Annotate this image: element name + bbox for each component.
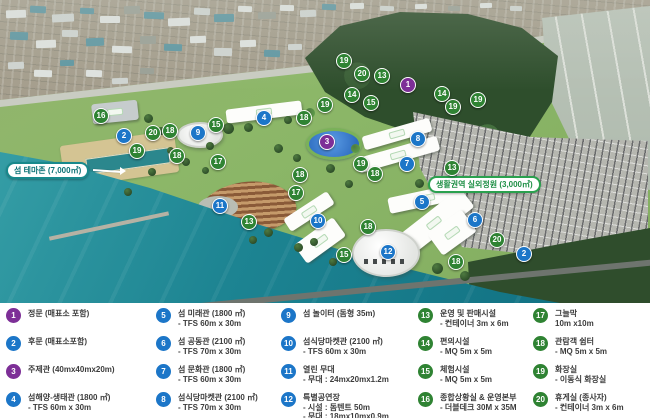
legend-item-15: 15체험시설- MQ 5m x 5m [418, 364, 533, 392]
legend-item-text: 화장실- 이동식 화장실 [555, 364, 606, 384]
haze-overlay [0, 0, 650, 303]
map-marker-19: 19 [445, 99, 461, 115]
map-marker-19: 19 [129, 143, 145, 159]
legend-item-text: 열린 무대- 무대 : 24mx20mx1.2m [303, 364, 389, 384]
map-marker-15: 15 [336, 247, 352, 263]
map-marker-2: 2 [516, 246, 532, 262]
map-marker-18: 18 [367, 166, 383, 182]
legend-item-13: 13운영 및 판매시설- 컨테이너 3m x 6m [418, 308, 533, 336]
legend-number-badge: 14 [418, 336, 433, 351]
legend-item-text: 그늘막10m x10m [555, 308, 594, 328]
map-marker-13: 13 [241, 214, 257, 230]
map-marker-7: 7 [399, 156, 415, 172]
map-marker-19: 19 [470, 92, 486, 108]
legend-item-text: 섬 놀이터 (돔형 35m) [303, 308, 375, 319]
map-marker-16: 16 [93, 108, 109, 124]
legend-item-text: 정문 (매표소 포함) [28, 308, 89, 319]
legend-item-text: 주제관 (40mx40mx20m) [28, 364, 115, 375]
legend-item-17: 17그늘막10m x10m [533, 308, 645, 336]
legend-item-7: 7섬 문화관 (1800 ㎡)- TFS 60m x 30m [156, 364, 281, 392]
map-marker-19: 19 [353, 156, 369, 172]
legend-number-badge: 16 [418, 392, 433, 407]
outdoor-garden-label: 생활권역 실외정원 (3,000㎡) [428, 176, 541, 193]
theme-zone-pointer-arrow [120, 167, 126, 175]
map-marker-6: 6 [467, 212, 483, 228]
legend-item-18: 18관람객 쉼터- MQ 5m x 5m [533, 336, 645, 364]
map-marker-13: 13 [444, 160, 460, 176]
legend-number-badge: 17 [533, 308, 548, 323]
theme-zone-label: 섬 테마존 (7,000㎡) [6, 162, 89, 179]
legend-number-badge: 4 [6, 392, 21, 407]
expo-site-plan: 섬 테마존 (7,000㎡) 생활권역 실외정원 (3,000㎡) 162201… [0, 0, 650, 418]
legend-item-text: 휴게실 (종사자)- 컨테이너 3m x 6m [555, 392, 624, 412]
map-marker-13: 13 [374, 68, 390, 84]
legend-item-text: 섬식당마켓관 (2100 ㎡)- TFS 70m x 30m [178, 392, 258, 412]
legend-number-badge: 13 [418, 308, 433, 323]
map-marker-18: 18 [360, 219, 376, 235]
map-marker-18: 18 [169, 148, 185, 164]
legend-number-badge: 15 [418, 364, 433, 379]
legend-item-4: 4섬해양-생태관 (1800 ㎡)- TFS 60m x 30m [6, 392, 156, 418]
legend-item-6: 6섬 공동관 (2100 ㎡)- TFS 70m x 30m [156, 336, 281, 364]
map-marker-19: 19 [317, 97, 333, 113]
legend-number-badge: 19 [533, 364, 548, 379]
map-marker-3: 3 [319, 134, 335, 150]
legend-item-text: 섬 문화관 (1800 ㎡)- TFS 60m x 30m [178, 364, 245, 384]
legend-number-badge: 18 [533, 336, 548, 351]
legend-item-text: 종합상황실 & 운영본부- 더블데크 30M x 35M [440, 392, 517, 412]
map-marker-11: 11 [212, 198, 228, 214]
map-marker-20: 20 [354, 66, 370, 82]
map-marker-12: 12 [380, 244, 396, 260]
map-marker-1: 1 [400, 77, 416, 93]
legend-item-text: 섬식당마켓관 (2100 ㎡)- TFS 60m x 30m [303, 336, 383, 356]
legend-item-text: 운영 및 판매시설- 컨테이너 3m x 6m [440, 308, 509, 328]
map-marker-18: 18 [162, 123, 178, 139]
legend-item-text: 특별공연장- 시설 : 돔텐트 50m- 무대 : 18mx10mx0.9m [303, 392, 389, 418]
map-marker-15: 15 [208, 117, 224, 133]
legend-number-badge: 7 [156, 364, 171, 379]
legend-item-text: 관람객 쉼터- MQ 5m x 5m [555, 336, 607, 356]
legend-item-11: 11열린 무대- 무대 : 24mx20mx1.2m [281, 364, 418, 392]
legend-number-badge: 5 [156, 308, 171, 323]
map-marker-18: 18 [292, 167, 308, 183]
legend-item-5: 5섬 미래관 (1800 ㎡)- TFS 60m x 30m [156, 308, 281, 336]
legend-item-9: 9섬 놀이터 (돔형 35m) [281, 308, 418, 336]
map-marker-10: 10 [310, 213, 326, 229]
map-marker-20: 20 [489, 232, 505, 248]
legend-number-badge: 20 [533, 392, 548, 407]
map-marker-4: 4 [256, 110, 272, 126]
legend-number-badge: 3 [6, 364, 21, 379]
legend-number-badge: 8 [156, 392, 171, 407]
map-marker-17: 17 [288, 185, 304, 201]
legend-item-8: 8섬식당마켓관 (2100 ㎡)- TFS 70m x 30m [156, 392, 281, 418]
legend-item-text: 후문 (매표소포함) [28, 336, 87, 347]
map-marker-19: 19 [336, 53, 352, 69]
map-marker-17: 17 [210, 154, 226, 170]
legend-item-1: 1정문 (매표소 포함) [6, 308, 156, 336]
legend-item-16: 16종합상황실 & 운영본부- 더블데크 30M x 35M [418, 392, 533, 418]
legend-number-badge: 2 [6, 336, 21, 351]
legend: 1정문 (매표소 포함)2후문 (매표소포함)3주제관 (40mx40mx20m… [0, 303, 650, 418]
legend-item-2: 2후문 (매표소포함) [6, 336, 156, 364]
map-marker-8: 8 [410, 131, 426, 147]
map-marker-18: 18 [448, 254, 464, 270]
aerial-map: 섬 테마존 (7,000㎡) 생활권역 실외정원 (3,000㎡) 162201… [0, 0, 650, 303]
legend-item-text: 체험시설- MQ 5m x 5m [440, 364, 492, 384]
legend-item-text: 편의시설- MQ 5m x 5m [440, 336, 492, 356]
legend-item-19: 19화장실- 이동식 화장실 [533, 364, 645, 392]
legend-item-text: 섬 공동관 (2100 ㎡)- TFS 70m x 30m [178, 336, 245, 356]
map-marker-2: 2 [116, 128, 132, 144]
map-marker-20: 20 [145, 125, 161, 141]
legend-item-10: 10섬식당마켓관 (2100 ㎡)- TFS 60m x 30m [281, 336, 418, 364]
map-marker-15: 15 [363, 95, 379, 111]
map-marker-14: 14 [344, 87, 360, 103]
legend-item-14: 14편의시설- MQ 5m x 5m [418, 336, 533, 364]
legend-number-badge: 11 [281, 364, 296, 379]
legend-item-text: 섬 미래관 (1800 ㎡)- TFS 60m x 30m [178, 308, 245, 328]
legend-item-12: 12특별공연장- 시설 : 돔텐트 50m- 무대 : 18mx10mx0.9m [281, 392, 418, 418]
legend-item-20: 20휴게실 (종사자)- 컨테이너 3m x 6m [533, 392, 645, 418]
legend-number-badge: 10 [281, 336, 296, 351]
map-marker-18: 18 [296, 110, 312, 126]
legend-number-badge: 6 [156, 336, 171, 351]
legend-number-badge: 9 [281, 308, 296, 323]
legend-item-text: 섬해양-생태관 (1800 ㎡)- TFS 60m x 30m [28, 392, 110, 412]
legend-number-badge: 1 [6, 308, 21, 323]
map-marker-9: 9 [190, 125, 206, 141]
map-marker-5: 5 [414, 194, 430, 210]
legend-number-badge: 12 [281, 392, 296, 407]
legend-item-3: 3주제관 (40mx40mx20m) [6, 364, 156, 392]
